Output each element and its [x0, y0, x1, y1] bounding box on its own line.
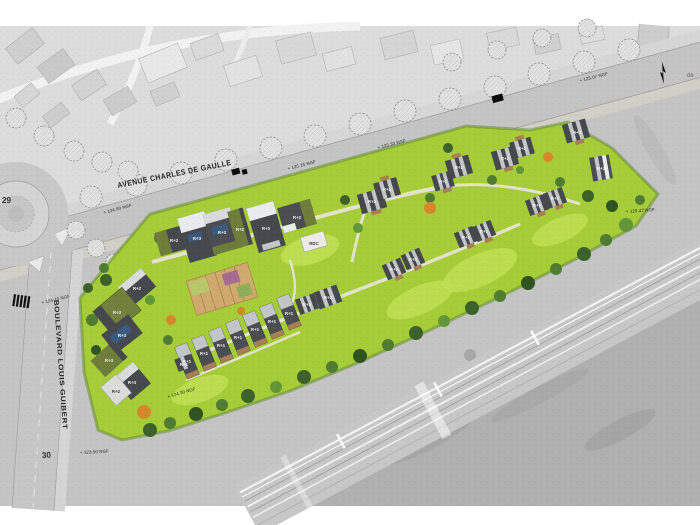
site-plan-page: R+2 R+3 R+3 R+2 R+3 R+2 RDC R+2 R+2 R+1 …: [0, 0, 700, 525]
site-plan-canvas: R+2 R+3 R+3 R+2 R+3 R+2 RDC R+2 R+2 R+1 …: [0, 0, 700, 525]
photo-grain-overlay: [0, 26, 700, 506]
